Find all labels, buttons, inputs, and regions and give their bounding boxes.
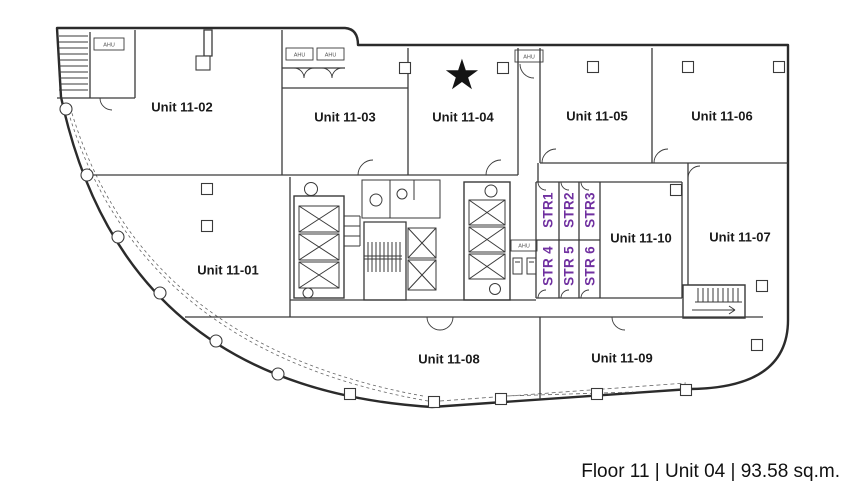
ahu-label: AHU bbox=[518, 244, 530, 250]
unit-label-11-09[interactable]: Unit 11-09 bbox=[591, 351, 652, 366]
unit-label-11-03[interactable]: Unit 11-03 bbox=[314, 110, 375, 125]
floor-plan: AHU AHU AHU AHU AHU bbox=[0, 0, 852, 500]
str-room-label-2: STR2 bbox=[562, 192, 577, 228]
unit-label-11-06[interactable]: Unit 11-06 bbox=[691, 109, 752, 124]
unit-label-11-08[interactable]: Unit 11-08 bbox=[418, 352, 479, 367]
unit-label-11-04[interactable]: Unit 11-04 bbox=[432, 110, 493, 125]
unit-label-11-10[interactable]: Unit 11-10 bbox=[610, 231, 671, 246]
ahu-label: AHU bbox=[103, 43, 115, 49]
selected-unit-star-icon: ★ bbox=[443, 54, 481, 96]
str-room-label-3: STR3 bbox=[583, 192, 598, 228]
unit-label-11-02[interactable]: Unit 11-02 bbox=[151, 100, 212, 115]
str-room-label-4: STR 4 bbox=[541, 246, 556, 286]
unit-label-11-05[interactable]: Unit 11-05 bbox=[566, 109, 627, 124]
ahu-label: AHU bbox=[294, 53, 306, 59]
str-room-label-5: STR 5 bbox=[562, 246, 577, 286]
ahu-label: AHU bbox=[523, 55, 535, 61]
unit-label-11-01[interactable]: Unit 11-01 bbox=[197, 263, 258, 278]
floor-unit-caption: Floor 11 | Unit 04 | 93.58 sq.m. bbox=[581, 461, 840, 483]
str-room-label-1: STR1 bbox=[541, 192, 556, 228]
floor-plan-drawing: AHU AHU AHU AHU AHU bbox=[0, 0, 852, 500]
str-room-label-6: STR 6 bbox=[583, 246, 598, 286]
ahu-label: AHU bbox=[325, 53, 337, 59]
unit-label-11-07[interactable]: Unit 11-07 bbox=[709, 230, 770, 245]
